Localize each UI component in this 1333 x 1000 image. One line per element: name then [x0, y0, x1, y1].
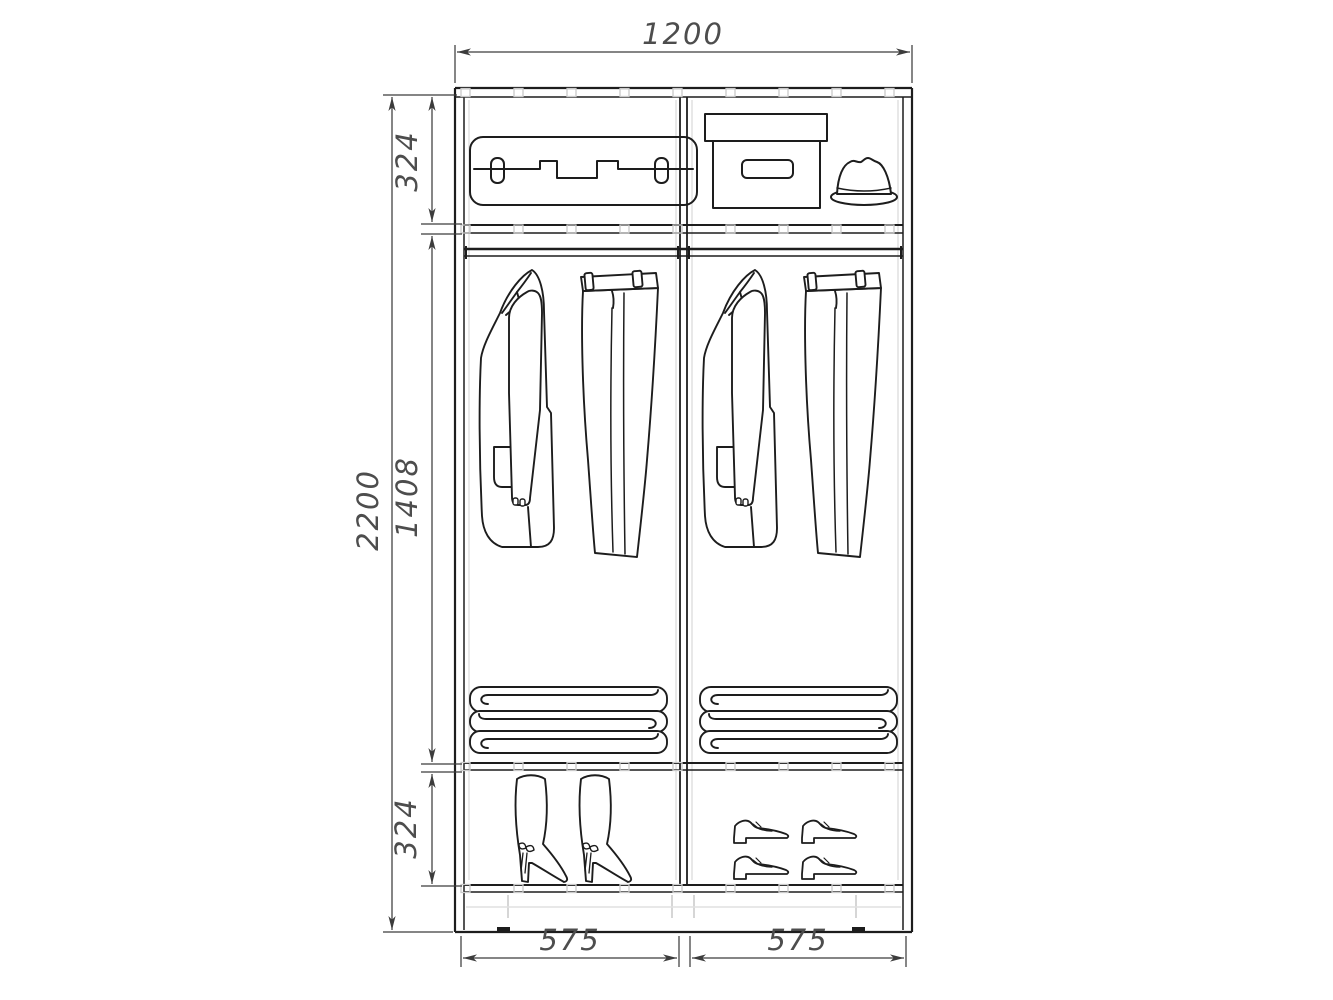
trousers-icon-left [581, 271, 658, 557]
folded-blankets-icon-left [470, 687, 667, 753]
dimension-label-overall-width: 1200 [642, 17, 724, 51]
folded-blankets-icon-right [700, 687, 897, 753]
dimension-label-left-bay: 575 [539, 923, 600, 957]
dimension-overall-width: 1200 [455, 17, 912, 83]
storage-box-icon [705, 114, 827, 208]
dimension-top-section: 324 [390, 97, 462, 224]
dimension-label-hanging-section: 1408 [390, 456, 424, 538]
suitcase-icon [470, 137, 697, 205]
door-guide-left [497, 927, 510, 931]
jacket-icon-left [480, 270, 554, 547]
dimension-label-overall-height: 2200 [351, 469, 385, 551]
plinth-supports [466, 895, 901, 918]
dimension-hanging-section: 1408 [390, 234, 462, 764]
fedora-hat-icon [831, 158, 897, 205]
jacket-icon-right [703, 270, 777, 547]
wardrobe-technical-drawing: 1200 2200 324 1408 324 [0, 0, 1333, 1000]
dimension-bottom-section: 324 [389, 772, 462, 886]
dimension-label-right-bay: 575 [767, 923, 828, 957]
high-boots-icon [516, 775, 632, 882]
dimension-right-bay: 575 [690, 923, 906, 967]
hanging-rod [464, 246, 903, 259]
dimension-left-bay: 575 [461, 923, 679, 967]
linens [470, 687, 897, 753]
footwear [516, 775, 857, 882]
mens-shoes-icon [734, 821, 856, 879]
dimension-label-top-section: 324 [390, 130, 424, 191]
trousers-icon-right [804, 271, 881, 557]
dimension-label-bottom-section: 324 [389, 797, 423, 858]
top-shelf-items [470, 114, 897, 208]
door-guide-right [852, 927, 865, 931]
